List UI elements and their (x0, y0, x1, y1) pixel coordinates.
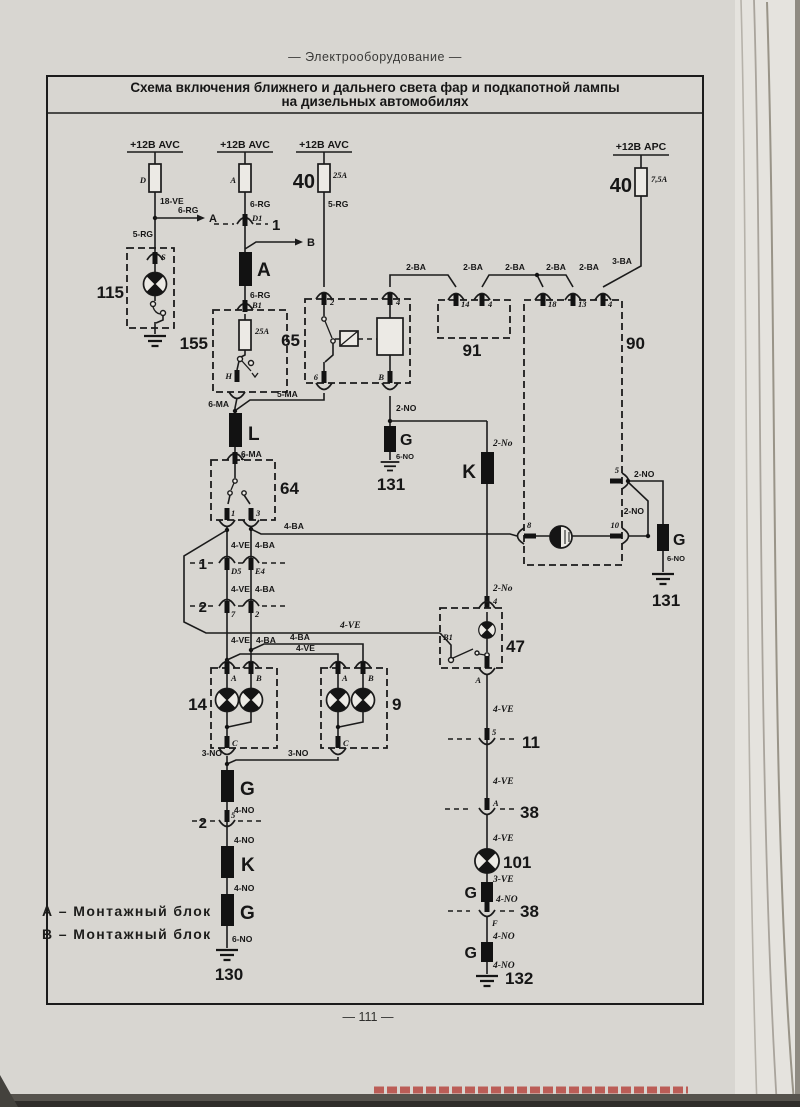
splice-g3-label: G (400, 432, 412, 449)
terminal-90-18-label: 18 (548, 299, 557, 309)
wire-3no-1: 3-NO (202, 748, 223, 758)
page-number: — 111 — (343, 1010, 394, 1024)
instrument-feed-bus: 2-BA 2-BA 2-BA 2-BA 2-BA +12В APC 40 7,5… (390, 141, 669, 287)
fuse-d-label: D (139, 175, 146, 185)
connector-38f-label: F (491, 918, 498, 928)
component-90-cluster: 90 18 13 4 8 10 5 2-NO 2-NO G 6-NO (518, 294, 686, 611)
wire-4ba-p1: 4-BA (255, 540, 275, 550)
wire-2no-4: 2-NO (634, 469, 655, 479)
terminal-91-4-label: 4 (487, 299, 492, 309)
diagram-title-line1: Схема включения ближнего и дальнего свет… (130, 80, 619, 95)
circuit-col1-underhood-lamp: +12В AVC D 18-VE 6-RG A 5-RG 115 S (97, 139, 217, 346)
wire-3no-2: 3-NO (288, 748, 309, 758)
wire-4no-2: 4-NO (234, 835, 255, 845)
legend-line-a: А – Монтажный блок (42, 903, 212, 919)
page-header: — Электрооборудование — (288, 50, 462, 64)
wire-4no-5: 4-NO (492, 932, 515, 942)
arrow-to-a-icon (197, 215, 205, 222)
wire-4no-3: 4-NO (234, 883, 255, 893)
terminal-65-4-label: 4 (395, 297, 400, 307)
connector-38a-label: A (492, 798, 499, 808)
component-115-label: 115 (97, 283, 124, 302)
wire-4ba-branch: 4-BA (290, 632, 310, 642)
terminal-s-label: S (161, 252, 166, 262)
wire-2ba-5: 2-BA (579, 262, 599, 272)
legend: А – Монтажный блок В – Монтажный блок (42, 903, 212, 942)
underhood-lamp-icon (144, 273, 167, 296)
component-155-label: 155 (180, 334, 208, 353)
splice-g2-label: G (240, 903, 255, 924)
splice-g4-label: G (465, 885, 477, 902)
lamp-47-icon (479, 622, 496, 639)
connector-7-label: 7 (231, 609, 236, 619)
headlamp-14: 14 A B C (188, 662, 277, 755)
fuse-40b (635, 168, 647, 196)
supply-label-3: +12В AVC (299, 139, 349, 151)
wire-2no-1: 2-NO (396, 403, 417, 413)
lamp-101-icon (475, 849, 499, 873)
diagram-frame (47, 76, 703, 1004)
terminal-90-5-label: 5 (615, 465, 620, 475)
page-edge-curl (735, 0, 800, 1107)
component-90-label: 90 (626, 334, 645, 353)
arrow-to-b-icon (295, 239, 303, 246)
fuse-d (149, 164, 161, 192)
connector-e4-tick (249, 558, 254, 570)
splice-l-label: L (248, 424, 260, 445)
ground-chain-130: 3-NO 3-NO G 4-NO 2 5 4-NO K 4-NO G 6-NO … (192, 748, 338, 984)
component-64-switch: 64 2 1 3 (211, 452, 299, 527)
terminal-9a-label: A (341, 673, 348, 683)
wiring-diagram: — Электрооборудование — Схема включения … (0, 0, 800, 1107)
lamp-14-high-icon (240, 689, 263, 712)
terminal-64-1-label: 1 (231, 508, 235, 518)
wire-6rg-arrow: 6-RG (178, 205, 199, 215)
wire-4no-1: 4-NO (234, 805, 255, 815)
terminal-64-1-tick (225, 508, 230, 520)
component-14-label: 14 (188, 695, 207, 714)
terminal-h-tick (235, 370, 240, 382)
splice-g5-label: G (465, 945, 477, 962)
ground-131b-label: 131 (652, 591, 680, 610)
ground-131b-icon (652, 574, 674, 584)
ground-132-label: 132 (505, 969, 533, 988)
splice-g1-block (221, 770, 234, 802)
terminal-90-8-label: 8 (527, 520, 532, 530)
connector-1-number: 1 (272, 217, 280, 234)
connector-d1-label: D1 (251, 213, 262, 223)
connector-d1-tick (243, 214, 248, 226)
splice-l-block (229, 413, 242, 447)
splice-g5-block (481, 942, 493, 962)
splice-k2-label: K (462, 462, 476, 483)
relay-coil (377, 318, 403, 355)
wire-6rg-1: 6-RG (250, 199, 271, 209)
splice-g1-label: G (240, 779, 255, 800)
wire-4ve-long: 4-VE (339, 621, 361, 631)
supply-label-2: +12В AVC (220, 139, 270, 151)
component-90-box (524, 300, 622, 565)
wire-4ve-4: 4-VE (492, 705, 514, 715)
high-beam-indicator-icon (550, 526, 572, 548)
terminal-90-4-label: 4 (607, 299, 612, 309)
headlamp-feed-wires: 4-VE 4-BA 4-VE 4-BA 1 D5 E4 4-VE 4-BA 2 … (184, 521, 517, 662)
fuse-40a-number: 40 (293, 171, 315, 193)
wire-6no-3: 6-NO (232, 934, 253, 944)
fuse-40a (318, 164, 330, 192)
fuse-40b-number: 40 (610, 175, 632, 197)
component-91-box (438, 300, 510, 338)
wire-2ba-3: 2-BA (505, 262, 525, 272)
connector-d5-tick (225, 558, 230, 570)
wire-4ve-branch: 4-VE (296, 643, 315, 653)
wire-2no-2: 2-No (492, 439, 513, 449)
wire-4ve-p2: 4-VE (231, 584, 250, 594)
connector-row2-number: 2 (199, 599, 207, 616)
ground-115-icon (144, 336, 166, 346)
k-chain-47: 2-No K 2-No 4 47 B1 A (440, 421, 525, 685)
connector-2-label: 2 (254, 609, 260, 619)
terminal-14a-label: A (230, 673, 237, 683)
legend-line-b: В – Монтажный блок (42, 926, 212, 942)
terminal-47-4-label: 4 (492, 596, 497, 606)
lamp-14-low-icon (216, 689, 239, 712)
fuse-a-label: A (229, 175, 236, 185)
ground-132-icon (476, 976, 498, 986)
connector-38f-number: 38 (520, 902, 539, 921)
connector-2-number: 2 (199, 815, 207, 832)
fuse-a (239, 164, 251, 192)
wire-4ba-p2: 4-BA (255, 584, 275, 594)
wire-2no-3: 2-No (492, 584, 513, 594)
connector-d5-label: D5 (230, 566, 242, 576)
scanned-manual-page: — Электрооборудование — Схема включения … (0, 0, 800, 1107)
connector-2-tick (249, 601, 254, 613)
lamp-9-high-icon (352, 689, 375, 712)
terminal-9b-label: B (367, 673, 374, 683)
connector-7-tick (225, 601, 230, 613)
wire-5rg-1: 5-RG (133, 229, 154, 239)
wire-4ba-horizontal: 4-BA (284, 521, 304, 531)
terminal-64-3-tick (249, 508, 254, 520)
relay-65-circuit: +12В AVC 40 25A 5-RG 65 2 4 6 B (281, 139, 410, 390)
wire-6no-1: 6-NO (396, 452, 414, 461)
terminal-91-14-label: 14 (461, 299, 470, 309)
wire-4no-4: 4-NO (495, 895, 518, 905)
lamp-101-chain: 4-VE 5 11 4-VE A 38 4-VE 101 3-VE G 4-NO… (445, 674, 540, 988)
terminal-64-2-label: 2 (240, 452, 246, 462)
diagram-title-line2: на дизельных автомобилях (282, 94, 469, 109)
terminal-h-label: H (224, 371, 232, 381)
terminal-14c-label: C (232, 738, 238, 748)
terminal-90-10-label: 10 (611, 520, 620, 530)
wire-5ma: 5-MA (277, 389, 298, 399)
fuse-155-rating: 25A (254, 326, 270, 336)
wire-4ve-p1: 4-VE (231, 540, 250, 550)
component-91: 91 14 4 (438, 294, 510, 361)
component-101-label: 101 (503, 853, 531, 872)
component-64-box (211, 460, 275, 520)
wire-2ba-4: 2-BA (546, 262, 566, 272)
fuse-155 (239, 320, 251, 350)
splice-g6-label: G (673, 532, 685, 549)
component-47-label: 47 (506, 637, 525, 656)
connector-e4-label: E4 (254, 566, 265, 576)
wire-5rg-2: 5-RG (328, 199, 349, 209)
wire-4ve-5: 4-VE (492, 777, 514, 787)
splice-a-block (239, 252, 252, 286)
terminal-65-b-label: B (377, 372, 384, 382)
terminal-b1-tick (243, 300, 248, 312)
wire-4ve-6: 4-VE (492, 834, 514, 844)
component-91-label: 91 (463, 341, 482, 360)
wire-6rg-2: 6-RG (250, 290, 271, 300)
splice-k2-block (481, 452, 494, 484)
terminal-47-a-label: A (474, 675, 481, 685)
ground-131a-label: 131 (377, 475, 405, 494)
headlamp-9: 9 A B C (321, 662, 401, 755)
splice-k1-block (221, 846, 234, 878)
terminal-65-6-label: 6 (314, 372, 319, 382)
terminal-64-2-tick (233, 452, 238, 464)
supply-label-4: +12В APC (616, 141, 667, 153)
fuse-40b-rating: 7,5A (651, 174, 668, 184)
splice-g3-block (384, 426, 396, 452)
wire-6no-2: 6-NO (667, 554, 685, 563)
terminal-14b-label: B (255, 673, 262, 683)
supply-label-1: +12В AVC (130, 139, 180, 151)
wire-3ba: 3-BA (612, 256, 632, 266)
arrow-b-label: B (307, 237, 315, 249)
lamp-9-low-icon (327, 689, 350, 712)
wire-2ba-1: 2-BA (406, 262, 426, 272)
fuse-40a-rating: 25A (332, 170, 348, 180)
terminal-9c-label: C (343, 738, 349, 748)
ground-130-label: 130 (215, 965, 243, 984)
terminal-65-2-label: 2 (329, 297, 335, 307)
wire-6ma-1: 6-MA (208, 399, 229, 409)
wire-2no-5: 2-NO (624, 506, 645, 516)
splice-k1-label: K (241, 855, 255, 876)
terminal-90-13-label: 13 (578, 299, 587, 309)
connector-11-number: 11 (522, 733, 540, 752)
splice-g2-block (221, 894, 234, 926)
splice-g6-block (657, 524, 669, 551)
component-9-label: 9 (392, 695, 401, 714)
wire-4ve-p3: 4-VE (231, 635, 250, 645)
wire-3ve: 3-VE (492, 875, 514, 885)
ground-131a-icon (381, 462, 400, 471)
terminal-s-tick (153, 252, 158, 264)
terminal-64-3-label: 3 (255, 508, 261, 518)
connector-11-5-label: 5 (492, 727, 497, 737)
component-65-label: 65 (281, 331, 300, 350)
component-64-label: 64 (280, 479, 299, 498)
wire-2ba-2: 2-BA (463, 262, 483, 272)
ground-130-icon (216, 950, 238, 960)
terminal-b1-label: B1 (251, 300, 262, 310)
connector-row1-number: 1 (199, 556, 207, 573)
splice-a-label: A (257, 260, 271, 281)
splice-g4-block (481, 882, 493, 902)
connector-38a-number: 38 (520, 803, 539, 822)
